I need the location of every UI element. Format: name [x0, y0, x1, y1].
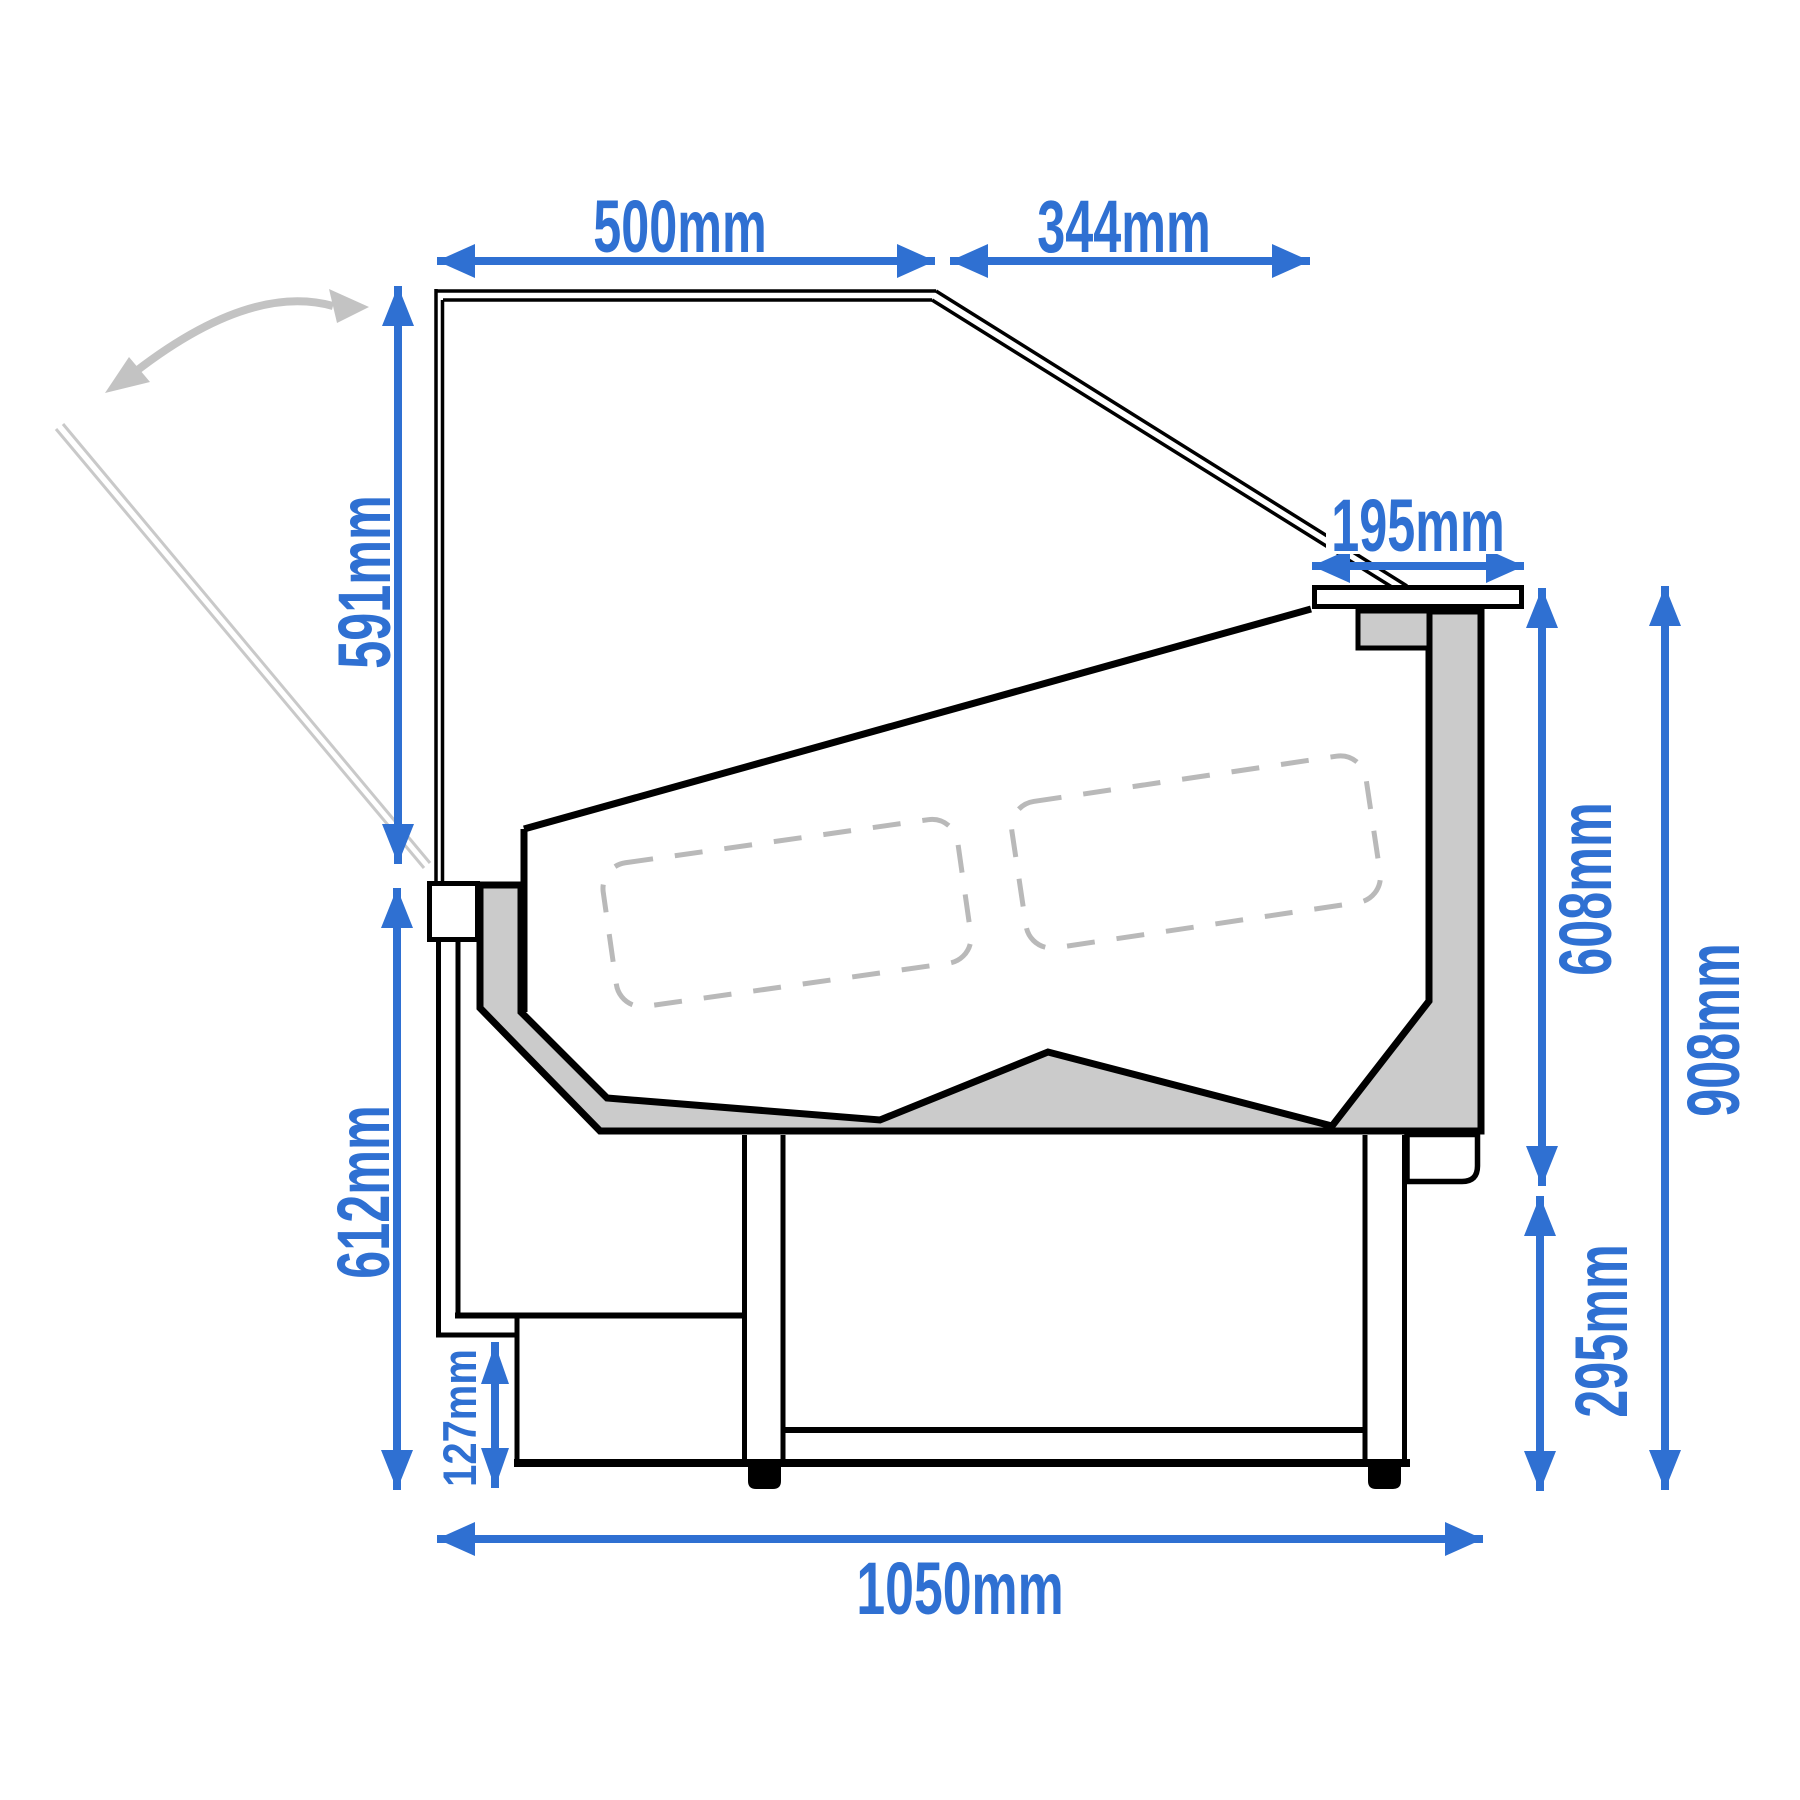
svg-text:127mm: 127mm	[435, 1349, 487, 1487]
svg-text:500mm: 500mm	[593, 187, 766, 269]
svg-text:612mm: 612mm	[324, 1105, 406, 1278]
svg-text:591mm: 591mm	[325, 495, 407, 668]
svg-text:344mm: 344mm	[1037, 187, 1210, 269]
svg-text:608mm: 608mm	[1546, 802, 1628, 975]
svg-text:908mm: 908mm	[1674, 943, 1756, 1116]
svg-text:295mm: 295mm	[1562, 1244, 1644, 1417]
svg-text:195mm: 195mm	[1331, 486, 1504, 568]
svg-text:1050mm: 1050mm	[856, 1547, 1063, 1630]
